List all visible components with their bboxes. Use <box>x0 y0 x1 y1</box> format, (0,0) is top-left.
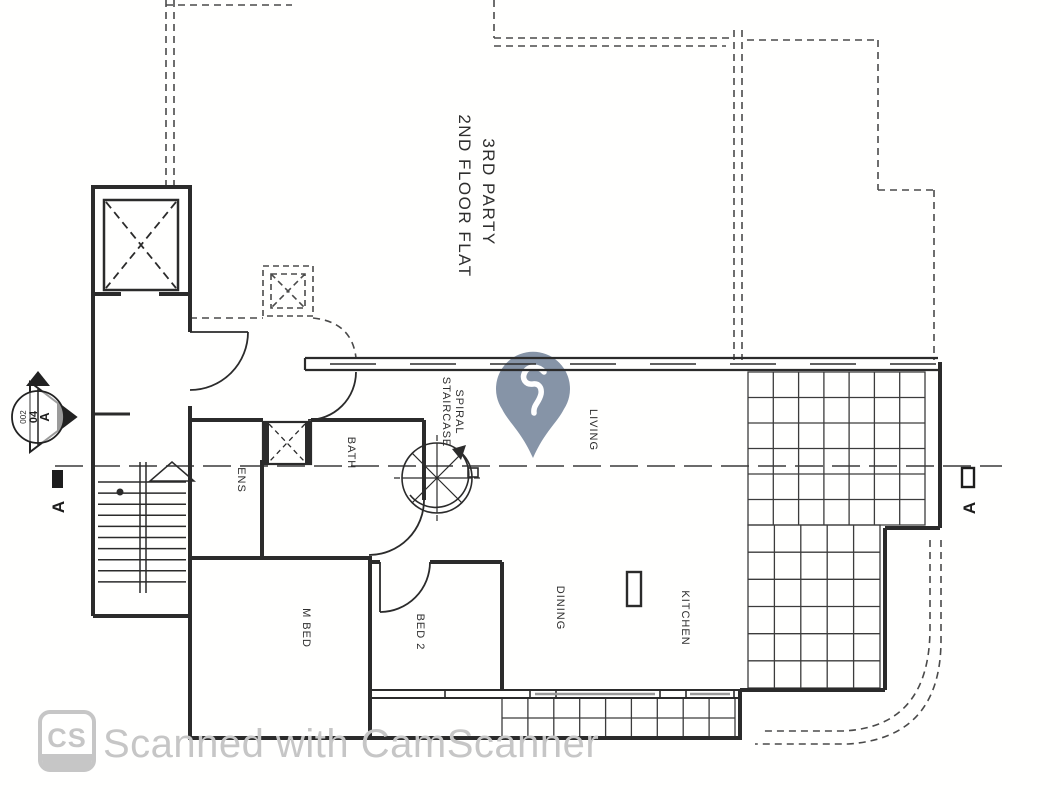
stair-start-dot <box>117 489 124 496</box>
tiled-floor-grids <box>502 372 925 738</box>
section-marker-left: A 04 002 <box>12 371 76 452</box>
door-stairwell <box>190 332 248 390</box>
room-labels: 3RD PARTY 2ND FLOOR FLAT SPIRAL STAIRCAS… <box>235 114 691 650</box>
section-cut-right-letter: A <box>960 502 979 514</box>
door-swings <box>190 332 430 612</box>
elevator-shaft <box>104 200 178 290</box>
spiral-staircase <box>394 435 480 521</box>
roof-shaft-dashed <box>263 266 313 316</box>
title-line1: 3RD PARTY <box>479 138 498 245</box>
door-bed2 <box>380 562 430 612</box>
room-label-m-bed: M BED <box>300 608 312 648</box>
walls <box>93 185 940 740</box>
cs-logo-band <box>42 754 92 770</box>
room-label-living: LIVING <box>587 409 599 451</box>
bottom-window-wall <box>372 690 740 698</box>
kitchen-tiles-lower <box>748 525 880 688</box>
section-cut-left-letter: A <box>49 501 68 513</box>
living-window-wall <box>305 358 938 370</box>
room-label-kitchen: KITCHEN <box>679 590 691 645</box>
room-label-spiral-1: SPIRAL <box>453 389 465 434</box>
room-label-bath: BATH <box>345 437 357 470</box>
section-marker-number: 04 <box>28 410 40 423</box>
section-marker-sheet: 002 <box>19 410 28 424</box>
room-label-bed2: BED 2 <box>414 614 426 651</box>
elevator-x-mark <box>106 202 176 288</box>
room-label-spiral-2: STAIRCASE <box>440 377 452 448</box>
structural-column <box>627 572 641 606</box>
location-pin-watermark <box>496 352 570 458</box>
spiral-spokes <box>394 435 480 521</box>
shower-x-mark <box>269 424 305 462</box>
camscanner-watermark: CS Scanned with CamScanner <box>40 712 599 770</box>
stair-treads <box>98 482 186 582</box>
title-line2: 2ND FLOOR FLAT <box>455 114 474 277</box>
room-label-dining: DINING <box>554 586 566 631</box>
scanned-floor-plan-page: A 04 002 A A 3RD PARTY 2ND FLOOR FLAT SP… <box>0 0 1061 799</box>
watermark-text: Scanned with CamScanner <box>103 722 599 766</box>
kitchen-tiles-upper <box>748 372 925 525</box>
door-living <box>308 372 356 420</box>
section-cut-right: A <box>960 468 979 514</box>
cs-logo-text: CS <box>47 723 87 753</box>
room-label-ens: ENS <box>235 467 247 493</box>
section-cut-left: A <box>49 470 68 513</box>
stairwell <box>98 462 194 593</box>
shower <box>263 422 311 464</box>
door-bath <box>369 500 424 555</box>
floor-plan-drawing: A 04 002 A A 3RD PARTY 2ND FLOOR FLAT SP… <box>0 0 1061 799</box>
